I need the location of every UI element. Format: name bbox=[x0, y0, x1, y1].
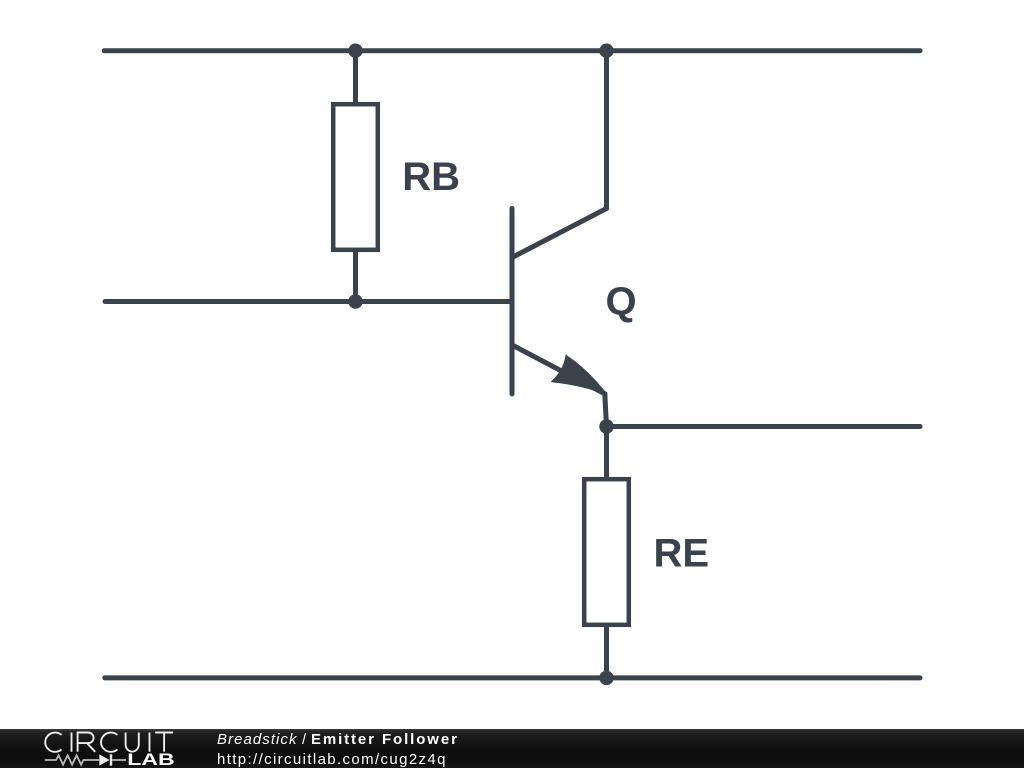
svg-text:LAB: LAB bbox=[127, 751, 174, 768]
svg-text:RE: RE bbox=[654, 532, 710, 576]
svg-text:Q: Q bbox=[606, 280, 637, 324]
svg-text:RB: RB bbox=[402, 155, 460, 199]
